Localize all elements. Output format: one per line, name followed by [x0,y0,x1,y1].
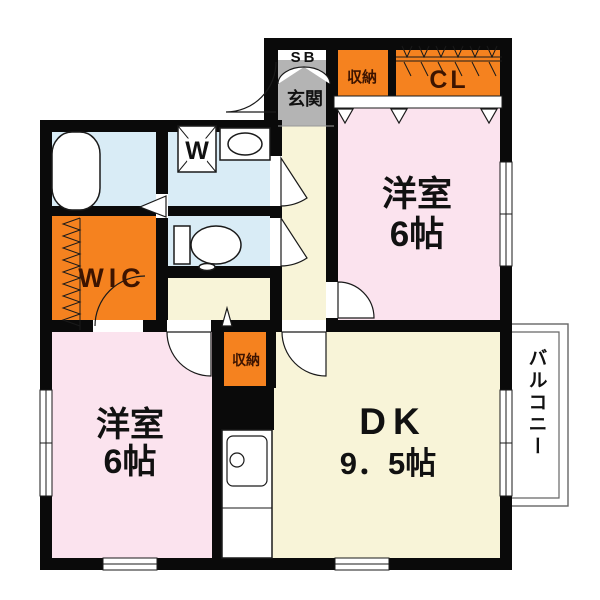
dk-label: DK [359,401,426,442]
washer-label: W [185,137,209,165]
western-room-2-size: 6帖 [104,443,157,481]
closet-label: CL [429,66,468,94]
entrance-label: 玄関 [287,88,323,109]
wash-basin [220,128,270,160]
floor-plan-page: SB 玄関 収納 CL 洋室 6帖 W W WIC 収納 洋室 6帖 DK 9．… [0,0,600,600]
western-room-2-label: 洋室 [96,405,164,444]
storage-top-label: 収納 [347,68,377,86]
floor-plan: SB 玄関 収納 CL 洋室 6帖 W W WIC 収納 洋室 6帖 DK 9．… [0,0,600,600]
closet-door-track [334,96,502,108]
kitchen-sink-unit [222,430,272,558]
western-room-1-size: 6帖 [390,215,444,254]
balcony-label: バルコニー [526,348,548,458]
storage-center-label: 収納 [232,352,260,368]
dk-size: 9．5帖 [340,446,436,481]
western-room-1-label: 洋室 [382,174,452,214]
shoe-box-label: SB [291,49,318,66]
bathtub [52,132,100,210]
wic-label: WIC [78,263,145,293]
